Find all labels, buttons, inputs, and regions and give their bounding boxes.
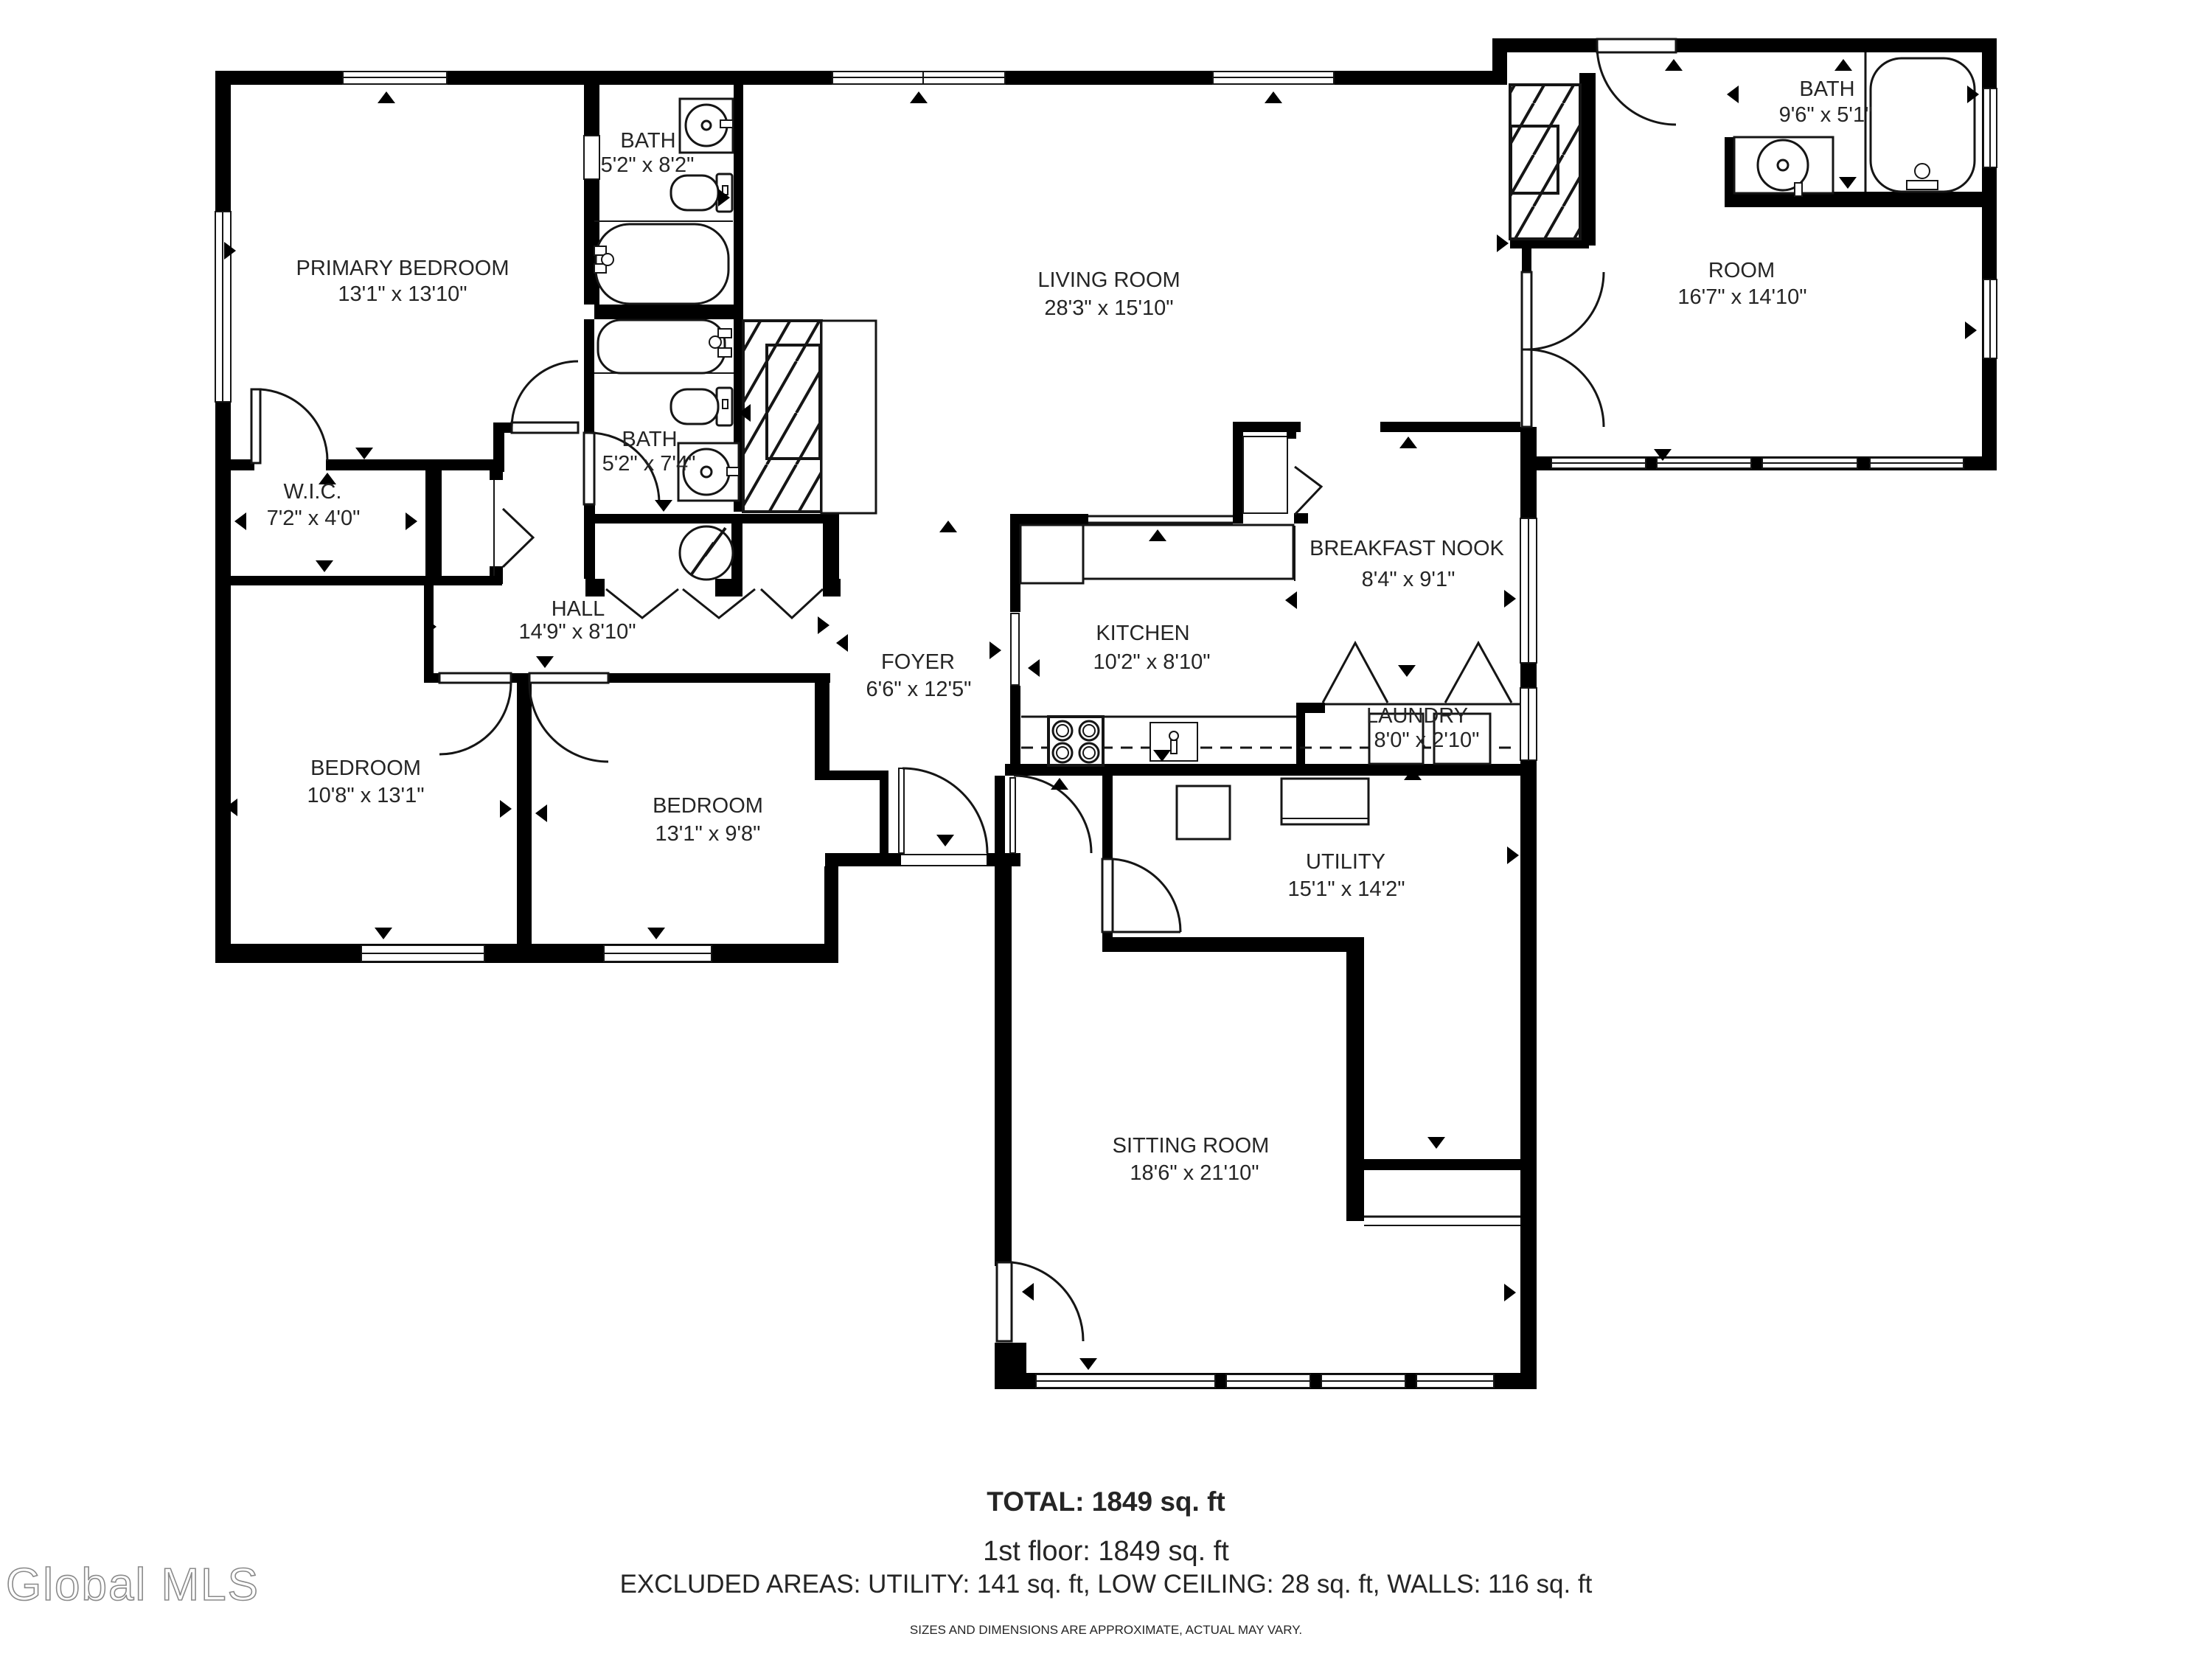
svg-text:8'0" x 2'10": 8'0" x 2'10" <box>1374 728 1480 752</box>
svg-text:Global MLS: Global MLS <box>6 1559 260 1610</box>
svg-text:KITCHEN: KITCHEN <box>1096 622 1189 645</box>
svg-text:16'7" x 14'10": 16'7" x 14'10" <box>1677 285 1806 309</box>
svg-text:15'1" x 14'2": 15'1" x 14'2" <box>1287 877 1405 901</box>
svg-text:13'1" x 9'8": 13'1" x 9'8" <box>655 822 761 846</box>
svg-text:UTILITY: UTILITY <box>1306 850 1385 874</box>
svg-text:13'1" x 13'10": 13'1" x 13'10" <box>338 282 467 306</box>
svg-text:BATH: BATH <box>1799 77 1854 101</box>
svg-text:SIZES AND DIMENSIONS ARE APPRO: SIZES AND DIMENSIONS ARE APPROXIMATE, AC… <box>910 1623 1302 1637</box>
svg-text:5'2" x 7'4": 5'2" x 7'4" <box>602 452 696 476</box>
svg-text:14'9" x 8'10": 14'9" x 8'10" <box>518 620 636 644</box>
svg-text:ROOM: ROOM <box>1708 259 1775 282</box>
svg-text:BATH: BATH <box>622 428 677 451</box>
svg-text:BREAKFAST NOOK: BREAKFAST NOOK <box>1310 537 1504 560</box>
svg-text:LAUNDRY: LAUNDRY <box>1366 704 1468 728</box>
svg-text:5'2" x 8'2": 5'2" x 8'2" <box>601 153 695 177</box>
svg-text:BATH: BATH <box>620 129 675 153</box>
svg-text:7'2" x 4'0": 7'2" x 4'0" <box>267 507 361 530</box>
svg-text:HALL: HALL <box>552 597 605 621</box>
svg-text:SITTING ROOM: SITTING ROOM <box>1113 1134 1270 1158</box>
svg-text:18'6" x 21'10": 18'6" x 21'10" <box>1130 1161 1259 1185</box>
svg-text:LIVING ROOM: LIVING ROOM <box>1037 268 1180 292</box>
svg-text:FOYER: FOYER <box>881 650 955 674</box>
svg-text:BEDROOM: BEDROOM <box>310 757 421 780</box>
svg-text:10'2" x 8'10": 10'2" x 8'10" <box>1093 650 1210 674</box>
svg-text:10'8" x 13'1": 10'8" x 13'1" <box>307 784 424 807</box>
svg-text:8'4" x 9'1": 8'4" x 9'1" <box>1362 568 1455 591</box>
svg-text:PRIMARY BEDROOM: PRIMARY BEDROOM <box>296 257 509 280</box>
svg-text:TOTAL: 1849 sq. ft: TOTAL: 1849 sq. ft <box>987 1486 1225 1517</box>
svg-text:6'6" x 12'5": 6'6" x 12'5" <box>866 678 972 701</box>
svg-text:28'3" x 15'10": 28'3" x 15'10" <box>1044 296 1173 320</box>
svg-text:BEDROOM: BEDROOM <box>653 794 763 818</box>
svg-text:W.I.C.: W.I.C. <box>284 480 342 504</box>
svg-text:9'6" x 5'1": 9'6" x 5'1" <box>1779 103 1873 127</box>
svg-text:EXCLUDED AREAS: UTILITY: 141 s: EXCLUDED AREAS: UTILITY: 141 sq. ft, LOW… <box>620 1570 1593 1599</box>
svg-text:1st floor: 1849 sq. ft: 1st floor: 1849 sq. ft <box>983 1536 1229 1567</box>
